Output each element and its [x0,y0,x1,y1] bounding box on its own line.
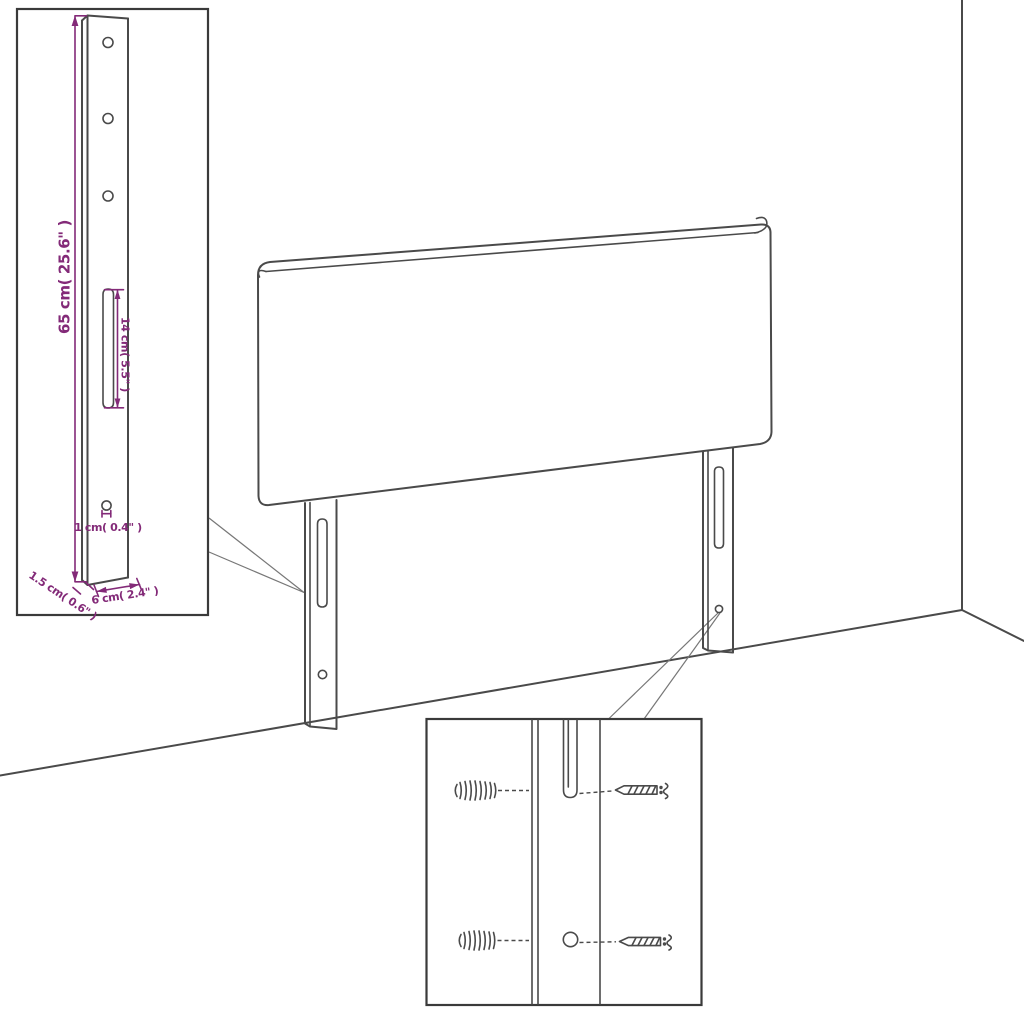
strip-slot [564,720,578,798]
screw-icon [580,935,672,950]
inset-bracket [82,16,128,586]
inset-leg-strip [532,720,600,1004]
wall-plug-icon [455,781,529,800]
bracket-hole [103,191,113,201]
leg-hole [318,670,326,678]
detail-inset-leg: 65 cm( 25.6" ) 14 cm( 5.5" ) 1 cm( 0.4" … [17,9,208,623]
leg-slot [318,519,328,607]
bracket-small-hole [102,501,111,510]
bracket-hole [103,38,113,48]
bracket-hole [103,114,113,124]
diagram-canvas: 65 cm( 25.6" ) 14 cm( 5.5" ) 1 cm( 0.4" … [0,0,1024,1024]
dimension-slot-label: 14 cm( 5.5" ) [119,317,132,392]
leg-slot [715,467,724,548]
headboard-panel [258,217,772,505]
detail-inset-mounting [427,719,702,1005]
leg-hole [715,605,722,612]
screw-icon [580,784,668,799]
dimension-height-label: 65 cm( 25.6" ) [56,220,74,334]
mount-leader-line [609,613,719,719]
inset-leader-line [209,518,304,593]
dimension-hole: 1 cm( 0.4" ) [74,511,142,535]
inset-leader-line [209,552,304,593]
strip-hole [563,932,577,946]
headboard-leg-right [703,444,733,653]
floor-line-left [0,610,962,776]
callout-lines [209,518,720,719]
floor-line-right [962,610,1024,641]
wall-plug-icon [459,931,529,950]
headboard-leg-left [305,500,337,729]
headboard-dimension-diagram: 65 cm( 25.6" ) 14 cm( 5.5" ) 1 cm( 0.4" … [0,0,1024,1024]
dimension-hole-label: 1 cm( 0.4" ) [74,521,142,534]
bracket-slot [103,289,114,408]
